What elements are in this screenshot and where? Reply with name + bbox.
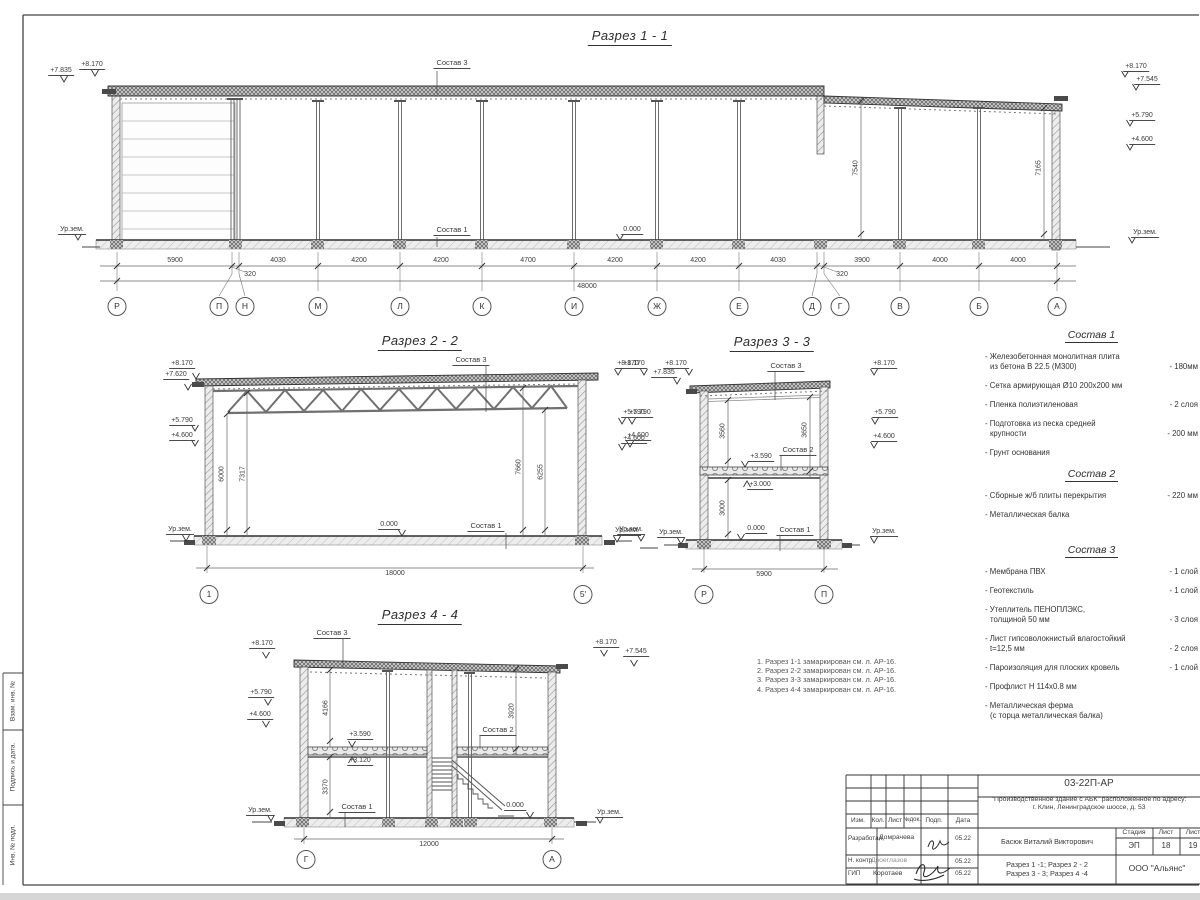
name-gip: Коротаев bbox=[873, 870, 902, 877]
material-item: - Сборные ж/б плиты перекрытия- 220 мм bbox=[985, 491, 1198, 501]
sostav1-heading: Состав 1 bbox=[985, 329, 1198, 343]
level-3590-s3: +3.590 bbox=[748, 453, 774, 462]
dim: 320 bbox=[836, 271, 848, 278]
elevation-s3-l3: +7.835 bbox=[651, 369, 677, 378]
sheet-title-line1: Разрез 1 -1; Разрез 2 - 2 bbox=[1006, 860, 1088, 869]
dim-s3: 5900 bbox=[756, 571, 772, 578]
role-developer: Разработал bbox=[848, 835, 882, 842]
elevation-s1-r4: +4.600 bbox=[1129, 136, 1155, 145]
elevation-s4-l3: +4.600 bbox=[247, 711, 273, 720]
material-item: - Железобетонная монолитная плитаиз бето… bbox=[985, 352, 1198, 372]
stage-value: ЭП bbox=[1128, 841, 1140, 850]
vdim-s4-3370: 3370 bbox=[323, 779, 330, 795]
material-item: - Подготовка из песка среднейкрупности- … bbox=[985, 419, 1198, 439]
name-developer: Домрачева bbox=[879, 834, 914, 841]
section-3-3-title: Разрез 3 - 3 bbox=[730, 334, 814, 352]
sostav3-label-s3: Состав 3 bbox=[767, 361, 804, 372]
material-item: - Металлическая балка bbox=[985, 510, 1198, 520]
dim: 4700 bbox=[520, 257, 536, 264]
elevation-s1-r2: +7.545 bbox=[1134, 76, 1160, 85]
sostav1-label-s4: Состав 1 bbox=[338, 802, 375, 813]
sostav3-label-s4: Состав 3 bbox=[313, 628, 350, 639]
dim-s4: 12000 bbox=[419, 841, 438, 848]
sostav1-label-s1: Состав 1 bbox=[433, 225, 470, 236]
dim: 4030 bbox=[770, 257, 786, 264]
sostav3-label-s1: Состав 3 bbox=[433, 58, 470, 69]
material-lists: Состав 1 - Железобетонная монолитная пли… bbox=[985, 329, 1198, 730]
dim: 5900 bbox=[167, 257, 183, 264]
note-line: 2. Разрез 2-2 замаркирован см. л. АР-16. bbox=[757, 666, 896, 675]
signature-2 bbox=[914, 865, 950, 881]
name-ncontrol: Двоеглазов bbox=[871, 857, 907, 864]
note-line: 3. Разрез 3-3 замаркирован см. л. АР-16. bbox=[757, 675, 896, 684]
dim: 4000 bbox=[1010, 257, 1026, 264]
sostav1-label-s2: Состав 1 bbox=[467, 521, 504, 532]
elevation-s4-l1: +8.170 bbox=[249, 640, 275, 649]
axis-bubble: Г bbox=[297, 850, 316, 869]
section-4-4-drawing bbox=[252, 639, 638, 844]
axis-bubble: Е bbox=[730, 297, 749, 316]
section-2-2-title: Разрез 2 - 2 bbox=[378, 333, 462, 351]
elevation-s3-l5: +4.600 bbox=[625, 432, 651, 441]
role-gip: ГИП bbox=[848, 870, 860, 877]
vdim-s1-7165: 7165 bbox=[1036, 160, 1043, 176]
section-4-4-title: Разрез 4 - 4 bbox=[378, 607, 462, 625]
col-data: Дата bbox=[956, 817, 970, 824]
dim: 4030 bbox=[270, 257, 286, 264]
vdim-s4-4166: 4166 bbox=[323, 700, 330, 716]
object-address-line1: "Производственное здание с АБК" располож… bbox=[992, 796, 1187, 803]
sheets-value: 19 bbox=[1189, 841, 1198, 850]
vdim-s1-7540: 7540 bbox=[853, 160, 860, 176]
vdim-s2-7317: 7317 bbox=[240, 466, 247, 482]
sheet-title-line2: Разрез 3 - 3; Разрез 4 -4 bbox=[1006, 869, 1088, 878]
axis-bubble: П bbox=[210, 297, 229, 316]
notes-block: 1. Разрез 1-1 замаркирован см. л. АР-16.… bbox=[757, 657, 896, 694]
dim: 4000 bbox=[932, 257, 948, 264]
dim: 4200 bbox=[433, 257, 449, 264]
ground-s2-left: Ур.зем. bbox=[166, 526, 194, 535]
date-gip: 05.22 bbox=[955, 870, 971, 877]
material-item: - Грунт основания bbox=[985, 448, 1198, 458]
margin-label-podpis: Подпись и дата. bbox=[10, 743, 17, 792]
object-address-line2: г. Клин, Ленинградское шоссе, д. 53 bbox=[1032, 804, 1145, 811]
date-ncontrol: 05.22 bbox=[955, 858, 971, 865]
axis-bubble: Л bbox=[391, 297, 410, 316]
elevation-s4-l2: +5.790 bbox=[248, 689, 274, 698]
elevation-s1-l1: +7.835 bbox=[48, 67, 74, 76]
ground-s4-right: Ур.зем. bbox=[595, 809, 623, 818]
sheet-value: 18 bbox=[1162, 841, 1171, 850]
vdim-s3-3000: 3000 bbox=[720, 500, 727, 516]
elevation-s3-l4: +5.790 bbox=[627, 409, 653, 418]
level-3590-s4: +3.590 bbox=[347, 731, 373, 740]
axis-bubble: Н bbox=[236, 297, 255, 316]
elevation-s3-l1: +8.170 bbox=[621, 360, 647, 369]
ground-s1-left: Ур.зем. bbox=[58, 226, 86, 235]
vdim-s2-7660: 7660 bbox=[516, 459, 523, 475]
elevation-s4-r1: +8.170 bbox=[593, 639, 619, 648]
axis-bubble: Р bbox=[695, 585, 714, 604]
axis-bubble: П bbox=[815, 585, 834, 604]
dim: 320 bbox=[244, 271, 256, 278]
section-1-1-title: Разрез 1 - 1 bbox=[588, 28, 672, 46]
note-line: 4. Разрез 4-4 замаркирован см. л. АР-16. bbox=[757, 685, 896, 694]
sostav2-heading: Состав 2 bbox=[985, 468, 1198, 482]
sostav1-label-s3: Состав 1 bbox=[776, 525, 813, 536]
vdim-s3-3650: 3650 bbox=[802, 422, 809, 438]
sostav2-label-s4: Состав 2 bbox=[479, 725, 516, 736]
axis-bubble: Д bbox=[803, 297, 822, 316]
section-3-3-drawing bbox=[627, 369, 879, 573]
dim: 4200 bbox=[351, 257, 367, 264]
ground-s3-right: Ур.зем. bbox=[870, 528, 898, 537]
axis-bubble: Ж bbox=[648, 297, 667, 316]
vdim-s4-3920: 3920 bbox=[509, 703, 516, 719]
material-item: - Пароизоляция для плоских кровель- 1 сл… bbox=[985, 663, 1198, 673]
axis-bubble: А bbox=[543, 850, 562, 869]
axis-bubble: В bbox=[891, 297, 910, 316]
sostav3-heading: Состав 3 bbox=[985, 544, 1198, 558]
material-item: - Сетка армирующая Ø10 200х200 мм bbox=[985, 381, 1198, 391]
axis-bubble: 5' bbox=[574, 585, 593, 604]
elevation-s4-r2: +7.545 bbox=[623, 648, 649, 657]
stage-header: Стадия bbox=[1122, 829, 1145, 836]
elevation-s3-r3: +4.600 bbox=[871, 433, 897, 442]
zero-level-s2: 0.000 bbox=[378, 521, 400, 530]
ground-s3-left2: Ур.зем. bbox=[657, 529, 685, 538]
dim: 4200 bbox=[607, 257, 623, 264]
drawing-sheet: Разрез 1 - 1 Состав 3 Состав 1 0.000 +7.… bbox=[0, 0, 1200, 900]
sheet-header: Лист bbox=[1159, 829, 1174, 836]
zero-level-s1: 0.000 bbox=[621, 226, 643, 235]
elevation-s2-l1: +8.170 bbox=[169, 360, 195, 369]
axis-bubble: А bbox=[1048, 297, 1067, 316]
col-kol: Кол. bbox=[872, 817, 885, 824]
axis-bubble: М bbox=[309, 297, 328, 316]
material-item: - Лист гипсоволокнистый влагостойкийt=12… bbox=[985, 634, 1198, 654]
note-line: 1. Разрез 1-1 замаркирован см. л. АР-16. bbox=[757, 657, 896, 666]
zero-level-s4: 0.000 bbox=[504, 802, 526, 811]
col-podp: Подп. bbox=[925, 817, 942, 824]
elevation-s3-r2: +5.790 bbox=[872, 409, 898, 418]
material-item: - Мембрана ПВХ- 1 слой bbox=[985, 567, 1198, 577]
axis-bubble: Б bbox=[970, 297, 989, 316]
sostav3-label-s2: Состав 3 bbox=[452, 355, 489, 366]
date-developer: 05.22 bbox=[955, 835, 971, 842]
material-item: - Металлическая ферма(с торца металличес… bbox=[985, 701, 1198, 721]
dim-s2: 18000 bbox=[385, 570, 404, 577]
vdim-s2-6000: 6000 bbox=[219, 466, 226, 482]
dim: 4200 bbox=[690, 257, 706, 264]
signature-1 bbox=[928, 841, 949, 849]
level-3000-s3: +3.000 bbox=[747, 481, 773, 490]
col-list: Лист bbox=[888, 817, 902, 824]
axis-bubble: Г bbox=[831, 297, 850, 316]
col-ndok: №док. bbox=[903, 817, 921, 823]
elevation-s1-r1: +8.170 bbox=[1123, 63, 1149, 72]
dim-total: 48000 bbox=[577, 283, 596, 290]
dim: 3900 bbox=[854, 257, 870, 264]
material-item: - Профлист Н 114х0.8 мм bbox=[985, 682, 1198, 692]
margin-label-vzam: Взам. инв. № bbox=[10, 681, 17, 721]
material-item: - Пленка полиэтиленовая- 2 слоя bbox=[985, 400, 1198, 410]
margin-label-inv: Инв. № подл. bbox=[10, 825, 17, 866]
ground-s4-left: Ур.зем. bbox=[246, 807, 274, 816]
author-name: Басюк Виталий Викторович bbox=[1001, 837, 1093, 846]
vdim-s2-6255: 6255 bbox=[538, 464, 545, 480]
axis-bubble: И bbox=[565, 297, 584, 316]
elevation-s2-l2: +7.620 bbox=[163, 371, 189, 380]
section-1-1-drawing bbox=[61, 70, 1140, 296]
doc-number: 03-22П-АР bbox=[1064, 778, 1113, 789]
company-name: ООО "Альянс" bbox=[1129, 863, 1186, 873]
zero-level-s3: 0.000 bbox=[745, 525, 767, 534]
elevation-s1-r3: +5.790 bbox=[1129, 112, 1155, 121]
sostav2-label-s3: Состав 2 bbox=[779, 445, 816, 456]
axis-bubble: Р bbox=[108, 297, 127, 316]
ground-s3-left1: Ур.зем. bbox=[617, 526, 645, 535]
elevation-s2-l3: +5.790 bbox=[169, 417, 195, 426]
elevation-s2-l4: +4.600 bbox=[169, 432, 195, 441]
vdim-s3-3560: 3560 bbox=[720, 423, 727, 439]
sheets-header: Лист bbox=[1186, 829, 1200, 836]
elevation-s3-l2: +8.170 bbox=[663, 360, 689, 369]
elevation-s3-r1: +8.170 bbox=[871, 360, 897, 369]
col-izm: Изм. bbox=[851, 817, 865, 824]
level-3120-s4: +3.120 bbox=[347, 757, 373, 766]
material-item: - Геотекстиль- 1 слой bbox=[985, 586, 1198, 596]
axis-bubble: К bbox=[473, 297, 492, 316]
ground-s1-right: Ур.зем. bbox=[1131, 229, 1159, 238]
elevation-s1-l2: +8.170 bbox=[79, 61, 105, 70]
material-item: - Утеплитель ПЕНОПЛЭКС,толщиной 50 мм- 3… bbox=[985, 605, 1198, 625]
axis-bubble: 1 bbox=[200, 585, 219, 604]
